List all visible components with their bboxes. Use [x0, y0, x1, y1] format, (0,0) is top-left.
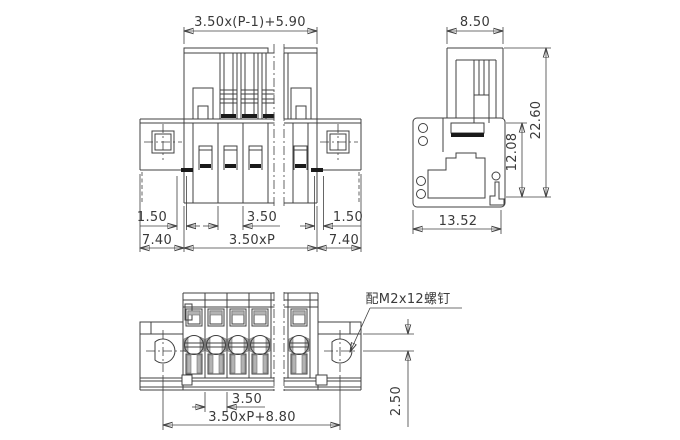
flange-hole — [417, 177, 426, 186]
flange-seam — [311, 168, 323, 172]
terminal-cell — [206, 309, 226, 374]
plan-view — [140, 291, 361, 392]
front-view — [140, 42, 361, 210]
dim-mounting-span-label: 3.50xP+8.80 — [208, 410, 296, 425]
plan-rail — [140, 378, 361, 390]
flange-seam — [181, 168, 193, 172]
flange-hole — [417, 190, 426, 199]
dim-wall-left-label: 1.50 — [137, 210, 167, 225]
flange-hole — [419, 137, 428, 146]
flange-hole — [419, 124, 428, 133]
plan-mounting-ear-left — [140, 322, 186, 378]
rail-step — [182, 375, 192, 385]
front-housing-outline — [184, 48, 317, 203]
latch-pin — [492, 172, 500, 180]
slot-base — [225, 164, 236, 168]
slot-base — [250, 164, 261, 168]
dim-flange-left-label: 7.40 — [142, 233, 172, 248]
technical-drawing-canvas: 3.50x(P-1)+5.90 1.50 3.50 1.50 7.40 3.50… — [0, 0, 680, 440]
dim-hole-offset-label: 2.50 — [389, 386, 404, 416]
hidden-edges — [142, 172, 359, 202]
slot-base — [295, 164, 306, 168]
front-contacts — [193, 53, 311, 119]
screw-thread-hatch — [451, 133, 484, 137]
terminal-cell — [184, 309, 204, 374]
dim-plan-pitch-label: 3.50 — [232, 392, 262, 407]
dim-width-label: 8.50 — [460, 15, 490, 30]
break-mask — [275, 291, 284, 392]
dim-body-span-label: 3.50xP — [229, 233, 275, 248]
rail-step — [316, 375, 327, 385]
dim-total-height-label: 22.60 — [529, 101, 544, 140]
contact-base — [221, 114, 236, 118]
front-flange-section — [140, 119, 361, 203]
side-hook — [490, 182, 504, 205]
dim-base-width-label: 13.52 — [439, 214, 478, 229]
break-mask — [275, 42, 284, 210]
terminal-block-drawing: 3.50x(P-1)+5.90 1.50 3.50 1.50 7.40 3.50… — [0, 0, 680, 440]
dim-inner-height-label: 12.08 — [505, 133, 520, 172]
terminal-cell — [250, 309, 270, 374]
side-flange-plate — [413, 118, 505, 207]
terminal-cell — [228, 309, 248, 374]
screw-note-label: 配M2x12螺钉 — [365, 292, 450, 307]
dim-top-span-label: 3.50x(P-1)+5.90 — [194, 15, 306, 30]
dim-pitch-label: 3.50 — [247, 210, 277, 225]
plan-mounting-ear-right — [318, 322, 361, 378]
screw-head-side — [451, 123, 484, 133]
side-view — [413, 48, 505, 207]
terminal-cell — [289, 309, 309, 374]
side-housing — [447, 48, 503, 123]
front-mounting-hole-right — [320, 124, 358, 160]
dim-flange-right-label: 7.40 — [329, 233, 359, 248]
slot-base — [200, 164, 211, 168]
dim-wall-right-label: 1.50 — [333, 210, 363, 225]
front-mounting-hole-left — [144, 124, 182, 160]
side-body-step — [428, 153, 485, 198]
contact-base — [242, 114, 257, 118]
